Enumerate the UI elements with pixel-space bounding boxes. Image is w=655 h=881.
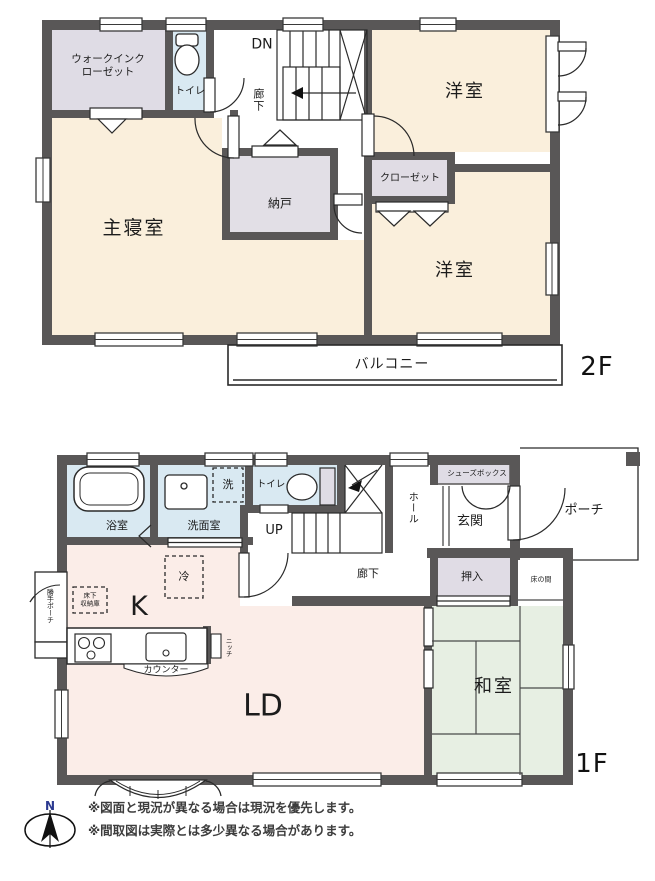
label-walk-in-closet: ウォークインクローゼット (70, 53, 146, 79)
label-hallway-2f: 廊下 (251, 88, 265, 112)
label-floor-2f: 2F (580, 351, 614, 384)
stairs-down-arrow-icon (291, 87, 303, 99)
label-fridge: 冷 (179, 570, 190, 584)
label-futon-closet: 押入 (461, 570, 483, 584)
label-entrance: 玄関 (457, 514, 483, 530)
washbasin-icon (165, 475, 207, 509)
label-stairs-dn: DN (251, 36, 272, 54)
label-laundry: 洗 (223, 478, 234, 492)
label-toilet-2f: トイレ (175, 86, 205, 99)
floorplan-page: ウォークインクローゼット トイレ DN 廊下 洋室 クローゼット 納戸 主寝室 … (0, 0, 655, 881)
label-hall: ホール (405, 492, 418, 525)
label-counter: カウンター (143, 665, 188, 676)
toilet2-fixture-icon (175, 34, 199, 75)
label-master-bedroom: 主寝室 (102, 217, 165, 241)
stairs-up-arrow-icon (348, 480, 362, 492)
label-bedroom-top: 洋室 (445, 81, 485, 104)
compass-north-label: N (45, 799, 55, 813)
label-kitchen: K (130, 590, 148, 624)
entrance-step-lines (443, 486, 449, 546)
label-storage-room: 納戸 (268, 197, 292, 212)
label-living-dining: LD (243, 687, 283, 725)
niche-box (211, 634, 221, 658)
label-bedroom-bottom: 洋室 (435, 260, 475, 283)
room-storage-floor (230, 156, 330, 232)
room-bedroom-bottom-floor (455, 172, 550, 335)
label-floor-1f: 1F (575, 748, 609, 781)
label-underfloor-storage: 床下 収納庫 (80, 592, 100, 609)
label-balcony: バルコニー (355, 356, 430, 374)
label-washroom: 洗面室 (188, 519, 221, 533)
label-closet: クローゼット (380, 173, 440, 186)
disclaimer-notes: ※図面と現況が異なる場合は現況を優先します。 ※間取図は実際とは多少異なる場合が… (88, 796, 361, 842)
bathtub-icon (74, 467, 144, 511)
staircase-2f (277, 30, 367, 120)
compass-icon (25, 810, 75, 848)
label-porch: ポーチ (564, 503, 603, 519)
room-master-bedroom-floor2 (222, 240, 364, 335)
label-niche: ニッチ (224, 637, 232, 657)
label-hallway-1f: 廊下 (357, 567, 379, 581)
label-bathroom: 浴室 (106, 519, 128, 533)
label-japanese-room: 和室 (474, 676, 514, 699)
disclaimer-line-1: ※図面と現況が異なる場合は現況を優先します。 (88, 796, 361, 819)
disclaimer-line-2: ※間取図は実際とは多少異なる場合があります。 (88, 819, 361, 842)
floorplan-canvas (0, 0, 655, 881)
label-shoe-box: シューズボックス (447, 468, 506, 477)
label-back-porch: 勝手ポーチ (46, 589, 55, 624)
porch-pillar (626, 452, 640, 466)
label-stairs-up: UP (265, 523, 282, 539)
label-tokonoma: 床の間 (531, 576, 552, 585)
label-toilet-1f: トイレ (257, 479, 286, 491)
